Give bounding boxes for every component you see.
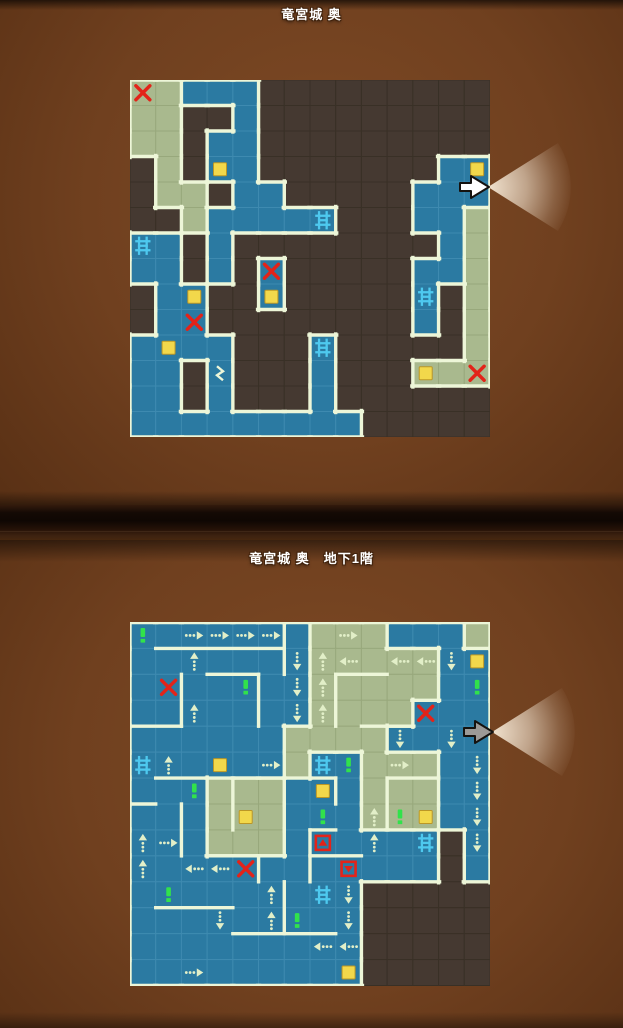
map-cell [181,80,207,106]
map-cell [439,752,465,778]
map-cell [361,674,387,700]
map-cell [259,830,285,856]
map-cell [336,804,362,830]
map-cell [413,157,439,183]
map-cell [181,131,207,157]
map-cell [130,361,156,387]
map-cell [130,208,156,234]
map-cell [284,778,310,804]
map-cell [284,335,310,361]
map-cell [233,335,259,361]
exclamation-icon [321,809,326,824]
map-cell [207,830,233,856]
map-cell [361,778,387,804]
map-cell [336,361,362,387]
map-cell [156,310,182,336]
map-cell [464,80,490,106]
map-cell [336,131,362,157]
chest-icon [214,163,227,176]
screen: 竜宮城 奥 竜宮城 奥 地下1階 [0,0,623,1028]
map-cell [181,882,207,908]
map-cell [361,934,387,960]
map-cell [439,908,465,934]
map-cell [259,934,285,960]
map-cell [413,182,439,208]
map-cell [233,233,259,259]
map-cell [181,208,207,234]
map-cell [439,335,465,361]
map-cell [439,622,465,648]
map-cell [207,182,233,208]
map-cell [387,310,413,336]
map-cell [413,335,439,361]
map-cell [130,157,156,183]
map-cell [413,80,439,106]
map-cell [310,310,336,336]
map-cell [259,131,285,157]
map-cell [284,412,310,438]
map-cell [259,778,285,804]
chest-icon [471,655,484,668]
map-cell [464,856,490,882]
map-cell [387,674,413,700]
panel-divider [0,505,623,540]
map-cell [156,208,182,234]
map-cell [439,386,465,412]
map-cell [439,856,465,882]
map-cell [259,208,285,234]
map-cell [207,259,233,285]
map-cell [207,726,233,752]
map-cell [413,386,439,412]
map-cell [361,284,387,310]
map-cell [310,233,336,259]
map-cell [156,412,182,438]
map-cell [361,208,387,234]
chest-icon [213,759,226,772]
map-cell [387,700,413,726]
map-cell [361,700,387,726]
map-cell [413,908,439,934]
map-cell [259,726,285,752]
chest-icon [419,810,432,823]
stairs-ladder-icon [316,887,329,903]
map-cell [156,182,182,208]
map-cell [361,386,387,412]
exclamation-icon [295,913,300,928]
map-cell [387,106,413,132]
map-cell [130,106,156,132]
map-cell [181,259,207,285]
map-cell [361,361,387,387]
map-cell [310,284,336,310]
map-cell [310,131,336,157]
chest-icon [162,341,175,354]
map-cell [387,284,413,310]
map-cell [156,856,182,882]
map-cell [361,80,387,106]
map-cell [413,131,439,157]
map-cell [233,157,259,183]
map-cell [259,960,285,986]
map-cell [156,233,182,259]
map-cell [336,80,362,106]
map-cell [387,934,413,960]
map-cell [207,106,233,132]
map-cell [284,622,310,648]
map-cell [310,259,336,285]
map-cell [130,259,156,285]
map-cell [439,361,465,387]
map-cell [181,934,207,960]
map-cell [233,259,259,285]
map-cell [156,622,182,648]
exclamation-icon [166,887,171,902]
map-cell [464,908,490,934]
map-cell [439,310,465,336]
map-cell [387,778,413,804]
map-cell [130,700,156,726]
map-cell [284,208,310,234]
map-bottom-svg [130,622,490,986]
map-cell [336,233,362,259]
exclamation-icon [398,809,403,824]
map-cell [387,157,413,183]
map-cell [207,310,233,336]
map-cell [207,335,233,361]
map-cell [387,856,413,882]
map-cell [439,778,465,804]
map-cell [259,106,285,132]
map-cell [310,386,336,412]
map-cell [284,310,310,336]
map-title-top: 竜宮城 奥 [0,4,623,23]
map-cell [130,335,156,361]
map-cell [130,934,156,960]
map-cell [439,182,465,208]
map-cell [413,726,439,752]
map-cell [233,310,259,336]
map-cell [336,386,362,412]
map-cell [310,412,336,438]
map-cell [439,106,465,132]
map-cell [464,259,490,285]
map-cell [181,106,207,132]
map-cell [284,804,310,830]
map-cell [464,335,490,361]
map-cell [336,335,362,361]
map-cell [156,908,182,934]
map-cell [130,284,156,310]
map-cell [233,131,259,157]
map-cell [413,208,439,234]
map-cell [387,622,413,648]
map-cell [156,648,182,674]
exclamation-icon [346,758,351,773]
map-cell [207,882,233,908]
map-cell [310,361,336,387]
map-cell [310,856,336,882]
map-cell [156,284,182,310]
map-cell [156,960,182,986]
map-cell [284,934,310,960]
map-cell [130,908,156,934]
map-cell [233,182,259,208]
map-cell [259,361,285,387]
map-cell [284,830,310,856]
map-cell [207,208,233,234]
map-cell [207,131,233,157]
map-cell [181,233,207,259]
map-cell [387,80,413,106]
chest-icon [265,290,278,303]
map-cell [207,233,233,259]
map-cell [464,233,490,259]
dungeon-map-bottom[interactable] [130,622,490,991]
map-cell [387,259,413,285]
map-cell [130,412,156,438]
exclamation-icon [243,680,248,695]
map-title-bottom: 竜宮城 奥 地下1階 [0,548,623,567]
map-cell [284,80,310,106]
map-cell [130,960,156,986]
chest-icon [342,966,355,979]
map-cell [387,131,413,157]
map-cell [259,412,285,438]
map-cell [156,157,182,183]
map-cell [259,700,285,726]
map-cell [181,726,207,752]
map-cell [413,960,439,986]
map-cell [130,778,156,804]
map-cell [464,960,490,986]
map-cell [181,804,207,830]
map-cell [310,726,336,752]
map-cell [310,182,336,208]
map-cell [233,882,259,908]
map-cell [361,310,387,336]
map-cell [156,778,182,804]
map-cell [361,752,387,778]
map-cell [284,882,310,908]
map-cell [413,882,439,908]
map-cell [259,856,285,882]
map-cell [233,361,259,387]
map-cell [413,934,439,960]
map-cell [464,386,490,412]
map-cell [181,361,207,387]
map-cell [259,804,285,830]
map-cell [284,106,310,132]
map-cell [439,157,465,183]
map-cell [233,960,259,986]
map-cell [361,856,387,882]
map-cell [130,386,156,412]
map-cell [207,80,233,106]
map-cell [336,674,362,700]
map-cell [284,284,310,310]
map-cell [361,106,387,132]
map-cell [387,386,413,412]
dungeon-map-top[interactable] [130,80,490,442]
map-cell [130,882,156,908]
map-cell [413,259,439,285]
map-cell [361,960,387,986]
map-cell [284,752,310,778]
map-cell [156,361,182,387]
map-cell [361,648,387,674]
map-cell [387,960,413,986]
map-cell [259,310,285,336]
map-cell [464,131,490,157]
map-cell [130,182,156,208]
map-cell [310,960,336,986]
map-cell [284,856,310,882]
map-cell [387,208,413,234]
map-cell [387,182,413,208]
map-cell [413,778,439,804]
map-cell [439,882,465,908]
map-cell [181,908,207,934]
map-cell [207,700,233,726]
map-cell [464,726,490,752]
chest-icon [471,163,484,176]
map-cell [233,778,259,804]
map-cell [156,934,182,960]
map-cell [336,157,362,183]
map-cell [336,310,362,336]
map-cell [284,361,310,387]
map-cell [207,934,233,960]
map-cell [464,208,490,234]
stairs-ladder-icon [316,212,329,228]
map-cell [387,412,413,438]
map-cell [361,882,387,908]
map-cell [361,157,387,183]
map-cell [439,259,465,285]
map-cell [336,259,362,285]
stairs-ladder-icon [136,238,149,254]
map-cell [361,259,387,285]
map-cell [181,674,207,700]
map-cell [464,622,490,648]
map-cell [361,182,387,208]
map-cell [181,335,207,361]
map-cell [310,106,336,132]
map-cell [361,131,387,157]
map-cell [207,386,233,412]
map-cell [233,208,259,234]
map-cell [387,882,413,908]
map-cell [130,726,156,752]
map-cell [284,259,310,285]
chest-icon [419,367,432,380]
map-cell [336,778,362,804]
map-cell [439,934,465,960]
map-cell [284,157,310,183]
map-cell [413,856,439,882]
map-cell [130,310,156,336]
exclamation-icon [192,784,197,799]
map-cell [259,182,285,208]
map-cell [464,310,490,336]
map-cell [439,700,465,726]
map-cell [181,182,207,208]
map-cell [156,131,182,157]
map-cell [233,908,259,934]
map-cell [361,412,387,438]
map-cell [336,182,362,208]
map-cell [233,106,259,132]
map-cell [130,648,156,674]
map-cell [181,386,207,412]
map-cell [439,80,465,106]
map-cell [233,700,259,726]
map-cell [181,830,207,856]
map-cell [310,157,336,183]
map-cell [413,412,439,438]
stairs-ladder-icon [419,835,432,851]
chest-icon [188,290,201,303]
map-cell [387,908,413,934]
map-cell [284,960,310,986]
map-cell [156,700,182,726]
map-cell [259,335,285,361]
map-cell [259,233,285,259]
map-cell [156,259,182,285]
map-cell [413,752,439,778]
map-cell [130,674,156,700]
map-cell [233,726,259,752]
map-cell [387,335,413,361]
map-top-svg [130,80,490,437]
map-cell [464,700,490,726]
map-cell [413,310,439,336]
map-cell [233,412,259,438]
map-cell [207,648,233,674]
stairs-ladder-icon [419,289,432,305]
map-cell [413,233,439,259]
map-cell [156,726,182,752]
map-cell [336,208,362,234]
map-cell [464,182,490,208]
map-cell [233,80,259,106]
map-cell [284,726,310,752]
map-cell [156,804,182,830]
map-cell [439,830,465,856]
map-cell [259,386,285,412]
map-cell [336,700,362,726]
exclamation-icon [141,628,146,643]
map-cell [310,80,336,106]
map-cell [259,674,285,700]
map-cell [464,934,490,960]
map-cell [464,106,490,132]
map-cell [284,233,310,259]
map-cell [284,182,310,208]
map-cell [181,157,207,183]
map-cell [310,908,336,934]
map-cell [336,106,362,132]
map-cell [336,830,362,856]
chest-icon [316,785,329,798]
map-cell [413,106,439,132]
exclamation-icon [475,680,480,695]
map-cell [207,778,233,804]
map-cell [439,960,465,986]
map-cell [439,131,465,157]
map-cell [336,726,362,752]
